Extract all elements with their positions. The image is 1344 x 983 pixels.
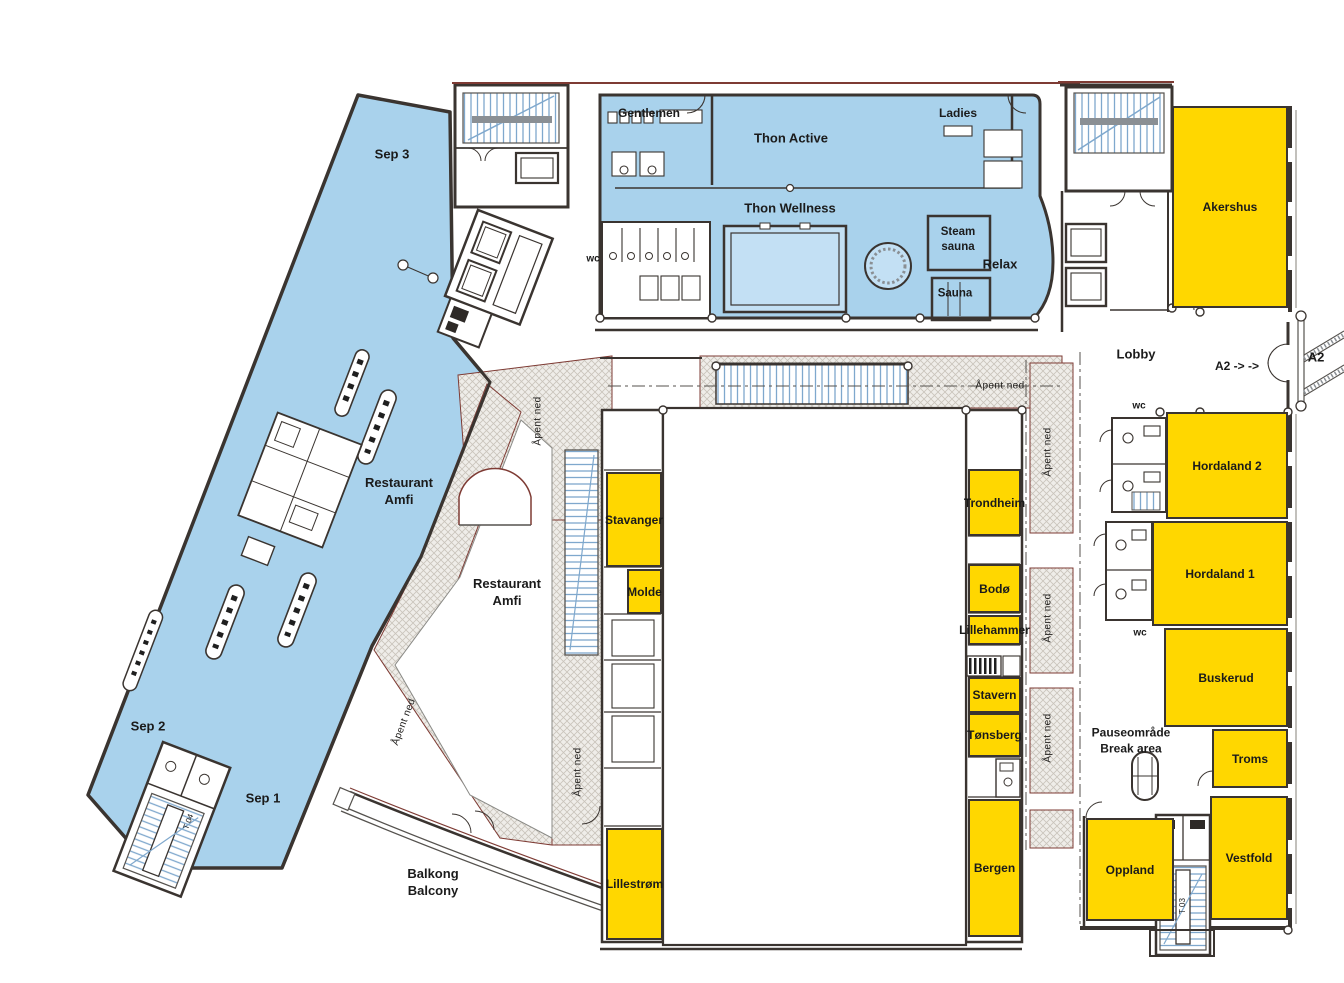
elevators xyxy=(1066,224,1106,306)
bridge-a2 xyxy=(1268,311,1344,411)
pool xyxy=(724,223,846,312)
label-relax: Relax xyxy=(983,257,1018,274)
label-gentlemen: Gentlemen xyxy=(618,106,680,122)
label-apent-ned-east2: Åpent ned xyxy=(1042,593,1055,642)
grand-stair xyxy=(716,364,908,404)
break-area-fixtures xyxy=(1086,752,1213,818)
label-restaurant-amfi-lower: RestaurantAmfi xyxy=(473,576,541,610)
label-apent-ned-west: Åpent ned xyxy=(532,396,545,445)
label-thon-active: Thon Active xyxy=(754,131,828,148)
label-stair-t03: T 03 xyxy=(1178,898,1188,914)
label-wc-north: wc xyxy=(1132,400,1145,413)
label-steam-sauna: Steamsauna xyxy=(941,225,976,255)
label-wc-spa: wc xyxy=(586,253,599,266)
room-lillehammer: Lillehammer xyxy=(968,615,1021,645)
room-hordaland1: Hordaland 1 xyxy=(1152,521,1288,626)
atrium-void xyxy=(663,408,966,945)
wc-block-north xyxy=(1100,418,1166,512)
room-vestfold: Vestfold xyxy=(1210,796,1288,920)
whirlpool xyxy=(865,243,911,289)
room-bodo: Bodø xyxy=(968,564,1021,613)
label-sep2: Sep 2 xyxy=(131,719,166,736)
floor-plan: Akershus Hordaland 2 Hordaland 1 Buskeru… xyxy=(0,0,1344,983)
room-bergen: Bergen xyxy=(968,799,1021,937)
stair-west xyxy=(565,450,598,655)
room-oppland: Oppland xyxy=(1086,818,1174,921)
label-a2-inside: A2 -> -> xyxy=(1215,359,1259,375)
room-molde: Molde xyxy=(627,569,662,614)
label-break-area: PauseområdeBreak area xyxy=(1092,725,1171,756)
room-stavern: Stavern xyxy=(968,677,1021,713)
label-thon-wellness: Thon Wellness xyxy=(744,201,836,218)
label-ladies: Ladies xyxy=(939,106,977,122)
room-troms: Troms xyxy=(1212,729,1288,788)
label-apent-ned-east1: Åpent ned xyxy=(1042,427,1055,476)
label-apent-ned-southwest: Åpent ned xyxy=(572,747,585,796)
label-lobby: Lobby xyxy=(1117,347,1156,364)
label-sep1: Sep 1 xyxy=(246,791,281,808)
room-hordaland2: Hordaland 2 xyxy=(1166,412,1288,519)
room-buskerud: Buskerud xyxy=(1164,628,1288,727)
stair-tower-northwest xyxy=(452,83,570,207)
room-trondheim: Trondheim xyxy=(968,469,1021,536)
label-sep3: Sep 3 xyxy=(375,147,410,164)
label-balcony: BalkongBalcony xyxy=(407,866,458,900)
room-lillestrom: Lillestrøm xyxy=(606,828,663,940)
label-restaurant-amfi-upper: RestaurantAmfi xyxy=(365,475,433,509)
label-wc-mid: wc xyxy=(1133,627,1146,640)
room-akershus: Akershus xyxy=(1172,106,1288,308)
room-stavanger: Stavanger xyxy=(606,472,662,567)
wc-block-mid xyxy=(1094,522,1152,620)
label-apent-ned-top: Åpent ned xyxy=(975,380,1024,393)
label-a2-outside: A2 xyxy=(1308,350,1325,367)
spa-wc-room xyxy=(602,222,710,318)
label-apent-ned-east3: Åpent ned xyxy=(1042,713,1055,762)
room-tonsberg: Tønsberg xyxy=(968,713,1021,757)
label-sauna: Sauna xyxy=(938,287,973,302)
